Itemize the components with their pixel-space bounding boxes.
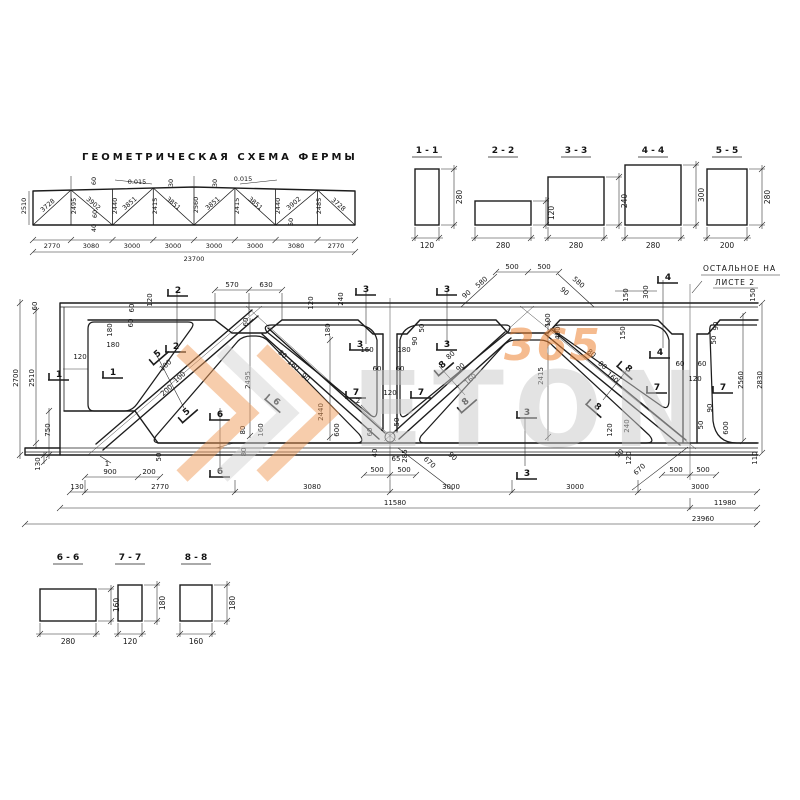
cross-sections-bottom: 6 - 62801607 - 71201808 - 8160180 — [36, 553, 237, 646]
dim-label: 50 — [418, 324, 426, 333]
note-line-2: ЛИСТЕ 2 — [715, 278, 755, 287]
section-cut-number: 7 — [720, 383, 726, 393]
dim-label: 3080 — [83, 242, 100, 250]
dim-label: 500 — [505, 263, 518, 271]
dim-label: 2560 — [737, 371, 745, 389]
section-height: 180 — [158, 596, 167, 611]
dim-label: 200 — [142, 468, 155, 476]
section-cut-mark: 1 — [48, 370, 69, 380]
dim-label: 630 — [259, 281, 272, 289]
scheme-title: ГЕОМЕТРИЧЕСКАЯ СХЕМА ФЕРМЫ — [82, 152, 358, 163]
dim-label: 60 — [128, 304, 136, 313]
dim-label: 3851 — [246, 195, 264, 212]
section-width: 120 — [123, 637, 138, 646]
dim-label: 3000 — [247, 242, 264, 250]
section-outline — [415, 169, 439, 225]
dim-label: 30 — [211, 179, 219, 187]
section-width: 160 — [189, 637, 204, 646]
dim-label: 2770 — [328, 242, 345, 250]
dim-label: 50 — [710, 336, 718, 345]
dim-label: 90 — [712, 322, 720, 331]
section-cut-mark: 3 — [436, 285, 457, 295]
dim-label: 2700 — [12, 369, 20, 387]
section-outline — [548, 177, 604, 225]
dim-label: 2495 — [70, 198, 78, 215]
section-height: 180 — [228, 596, 237, 611]
note-line-1: ОСТАЛЬНОЕ НА — [703, 264, 776, 273]
section-outline — [707, 169, 747, 225]
section-label: 3 - 3 — [565, 146, 588, 156]
section-cut-mark: 3 — [355, 285, 376, 295]
section-cut-number: 1 — [110, 368, 116, 378]
dim-label: 110 — [751, 451, 759, 464]
dim-label: 150 — [749, 288, 757, 301]
dim-label: 50 — [155, 453, 163, 462]
dim-label: 60 — [90, 177, 98, 185]
section-width: 280 — [569, 241, 584, 250]
dim-label: 600 — [722, 421, 730, 434]
dim-label: 2770 — [44, 242, 61, 250]
dim-label: 300 — [642, 285, 650, 298]
drawing-canvas: ГЕОМЕТРИЧЕСКАЯ СХЕМА ФЕРМЫ 2510372824953… — [0, 0, 800, 800]
dim-label: 90 — [411, 337, 419, 346]
section-label: 5 - 5 — [716, 146, 739, 156]
section-height: 280 — [455, 190, 464, 205]
dim-label: 3000 — [691, 483, 709, 491]
dim-label: 11580 — [384, 499, 406, 507]
dim-label: 2770 — [151, 483, 169, 491]
dim-label: 2485 — [315, 198, 323, 215]
section-cut-mark: 6 — [209, 410, 230, 420]
dim-label: 3080 — [288, 242, 305, 250]
dim-label: 60 — [127, 319, 135, 328]
dim-label: 23960 — [692, 515, 714, 523]
dim-label: 180 — [106, 341, 119, 349]
dim-label: 130 — [70, 483, 83, 491]
dim-label: 3728 — [329, 196, 347, 213]
dim-label: 3080 — [303, 483, 321, 491]
section-label: 4 - 4 — [642, 146, 665, 156]
dim-label: 60 — [31, 302, 39, 311]
dim-label: 11980 — [714, 499, 736, 507]
dim-label: 2415 — [233, 198, 241, 215]
dim-label: 100 — [158, 358, 173, 373]
dim-label: 2415 — [151, 198, 159, 215]
dim-label: 23700 — [184, 255, 205, 263]
section-cut-number: 3 — [444, 285, 450, 295]
section-cut-number: 1 — [56, 370, 62, 380]
section-cut-mark: 2 — [167, 286, 188, 296]
dim-label: 900 — [103, 468, 116, 476]
dim-label: 600 — [333, 423, 341, 436]
dim-label: 100 — [172, 370, 187, 385]
dim-label: 2560 — [192, 197, 200, 214]
dim-label: 3000 — [124, 242, 141, 250]
dim-label: 60 — [91, 210, 99, 218]
dim-label: 40 — [90, 224, 98, 232]
dim-label: 570 — [225, 281, 238, 289]
section-label: 8 - 8 — [185, 553, 208, 563]
section-cut-mark: 7 — [712, 383, 733, 393]
truss-geometric-scheme: ГЕОМЕТРИЧЕСКАЯ СХЕМА ФЕРМЫ 2510372824953… — [20, 152, 358, 263]
dim-label: 3000 — [442, 483, 460, 491]
dim-label: 500 — [537, 263, 550, 271]
dim-label: 3000 — [165, 242, 182, 250]
dim-label: 580 — [474, 275, 489, 290]
dim-label: 50 — [287, 218, 295, 226]
dim-label: 130 — [34, 457, 42, 470]
dim-label: 2510 — [20, 198, 28, 215]
section-height: 280 — [763, 190, 772, 205]
section-cut-number: 2 — [175, 286, 181, 296]
dim-label: 0.015 — [128, 178, 147, 186]
dim-label: 3851 — [164, 195, 182, 212]
dim-label: 120 — [73, 353, 86, 361]
section-width: 280 — [61, 637, 76, 646]
dim-label: 2440 — [111, 198, 119, 215]
section-width: 120 — [420, 241, 435, 250]
dim-label: 2510 — [28, 369, 36, 387]
section-width: 200 — [720, 241, 735, 250]
dim-label: 3000 — [566, 483, 584, 491]
dim-label: 60 — [242, 318, 250, 327]
dim-label: 180 — [324, 323, 332, 336]
section-cut-number: 2 — [173, 342, 179, 352]
dim-label: 90 — [558, 286, 570, 298]
dim-label: 240 — [337, 292, 345, 305]
dim-label: 2440 — [274, 198, 282, 215]
section-cut-mark: 5 — [175, 402, 197, 423]
section-height: 160 — [112, 598, 121, 613]
dim-label: 30 — [167, 179, 175, 187]
section-cut-mark: 1 — [102, 368, 123, 378]
dim-label: 3000 — [206, 242, 223, 250]
section-label: 2 - 2 — [492, 146, 515, 156]
dim-label: 150 — [619, 326, 627, 339]
dim-label: 120 — [307, 296, 315, 309]
dim-label: 90 — [461, 289, 473, 301]
dim-label: 750 — [44, 423, 52, 436]
section-outline — [475, 201, 531, 225]
dim-label: 120 — [146, 293, 154, 306]
dim-label: 0.015 — [234, 175, 253, 183]
section-cut-number: 3 — [363, 285, 369, 295]
section-outline — [180, 585, 212, 621]
blueprint-page: ГЕОМЕТРИЧЕСКАЯ СХЕМА ФЕРМЫ 2510372824953… — [0, 0, 800, 800]
section-outline — [118, 585, 142, 621]
section-label: 7 - 7 — [119, 553, 142, 563]
dim-label: 3851 — [204, 195, 222, 212]
section-label: 1 - 1 — [416, 146, 439, 156]
watermark-number: 365 — [504, 320, 602, 371]
section-outline — [40, 589, 96, 621]
section-height: 300 — [697, 188, 706, 203]
dim-label: 150 — [622, 288, 630, 301]
section-cut-number: 6 — [217, 410, 223, 420]
cross-sections-top: 1 - 11202802 - 22801203 - 32802404 - 428… — [411, 146, 772, 250]
dim-label: 1 — [105, 460, 109, 468]
dim-label: 180 — [106, 323, 114, 336]
section-cut-number: 4 — [665, 273, 671, 283]
section-outline — [625, 165, 681, 225]
dim-label: 2830 — [756, 371, 764, 389]
section-width: 280 — [646, 241, 661, 250]
section-width: 280 — [496, 241, 511, 250]
section-cut-mark: 4 — [657, 273, 678, 283]
section-label: 6 - 6 — [57, 553, 80, 563]
